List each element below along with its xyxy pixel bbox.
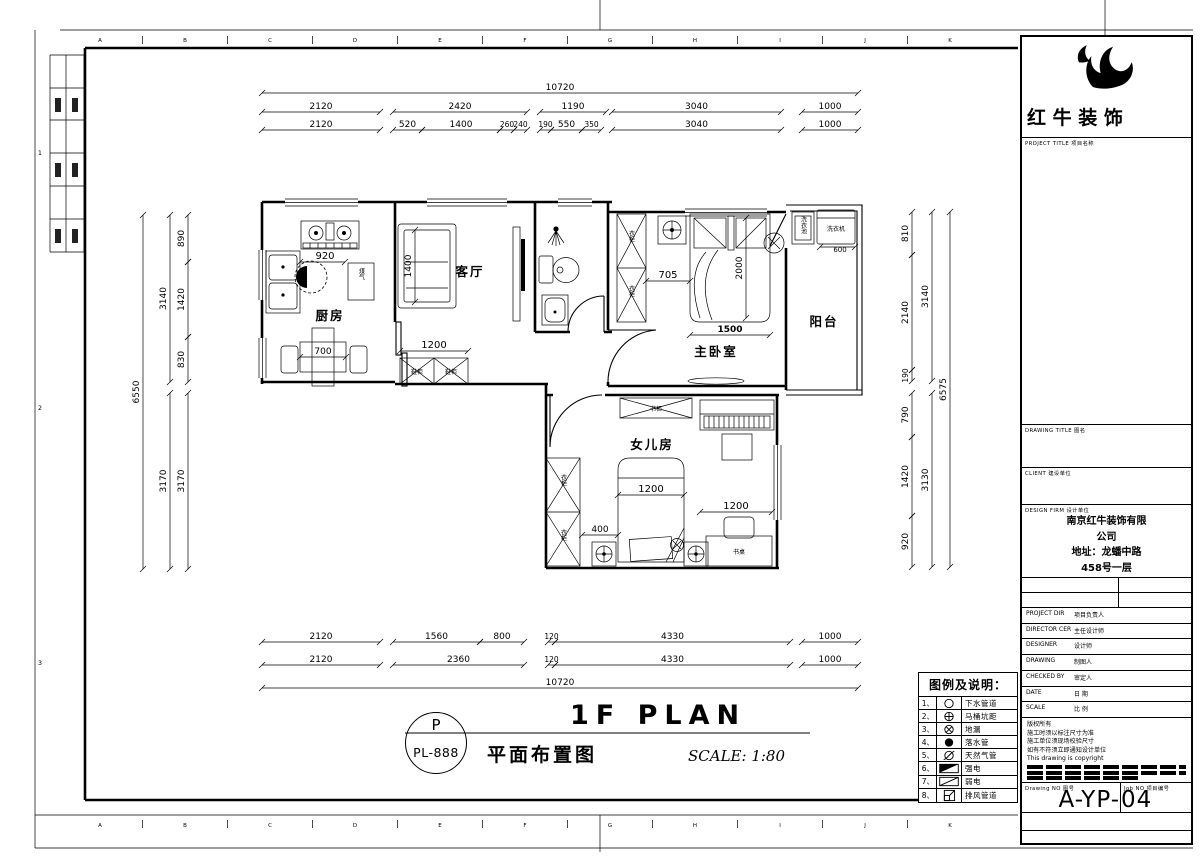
balcony-label: 阳台 [809, 314, 838, 329]
living-label: 客厅 [454, 264, 484, 279]
desk [706, 517, 772, 566]
dim-label: 1200 [421, 340, 446, 351]
grid-letter: G [608, 823, 612, 829]
dim-label: 3170 [177, 469, 187, 492]
legend-item: 3、 地漏 [919, 723, 1017, 736]
dim-label: 2120 [310, 102, 333, 112]
design-firm-section: DESIGN FIRM 设计单位 南京红牛装饰有限 公司 地址：龙蟠中路 458… [1022, 504, 1191, 577]
legend-title: 图例及说明： [919, 673, 1017, 697]
sheet-title: 1F PLAN [570, 700, 746, 731]
project-title-label: PROJECT TITLE 项目名称 [1025, 139, 1094, 147]
bookcase-label: 书柜 [650, 405, 662, 413]
scale-label: SCALE: 1:80 [688, 747, 785, 765]
balcony-glazing [770, 205, 862, 395]
legend-item: 5、 天然气管 [919, 749, 1017, 762]
blank-grid-section [1022, 577, 1191, 607]
legend-box: 图例及说明： 1、 下水管道 2、 马桶坑距 3、 地漏 4、 落水管 5、 天… [918, 672, 1018, 803]
dim-label: 1000 [819, 632, 842, 642]
dim-label: 520 [399, 120, 416, 130]
dim-label: 2140 [901, 301, 911, 324]
dim-label: 1000 [819, 655, 842, 665]
row-director: DIRECTOR CER主任设计师 [1022, 624, 1191, 640]
drawing-title-section: DRAWING TITLE 图名 [1022, 424, 1191, 467]
shoe-cab-label: 鞋柜 [445, 368, 457, 376]
dim-label: 600 [833, 246, 846, 254]
dim-label: 190 [538, 120, 553, 129]
firm-line: 公司 [1022, 530, 1191, 546]
grid-letter: H [693, 38, 697, 44]
dim-label: 705 [658, 270, 677, 281]
dim-label: 1420 [177, 288, 187, 311]
wardrobe-label: 衣柜 [628, 229, 635, 243]
drawing-no-section: Drawing NO 图号 A-YP- Job NO 项目编号 04 [1022, 782, 1191, 812]
revision-boxes [50, 55, 84, 252]
dim-label: 830 [177, 351, 187, 368]
dim-label: 810 [901, 225, 911, 242]
grid-letter: C [268, 38, 272, 44]
double-bed [690, 214, 770, 322]
dim-label: 4330 [661, 632, 684, 642]
dim-label: 3170 [159, 469, 169, 492]
dim-label: 3130 [921, 468, 931, 491]
dim-label: 10720 [546, 83, 575, 93]
signature-rows: PROJECT DIR项目负责人 DIRECTOR CER主任设计师 DESIG… [1022, 607, 1191, 717]
speaker-box-icon [658, 216, 686, 244]
legend-item: 1、 下水管道 [919, 697, 1017, 710]
row-checked: CHECKED BY审定人 [1022, 671, 1191, 687]
grid-letter: B [183, 823, 187, 829]
firm-line: 南京红牛装饰有限 [1022, 514, 1191, 530]
drawing-title-label: DRAWING TITLE 图名 [1025, 426, 1085, 434]
row-date: DATE日 期 [1022, 687, 1191, 703]
detail-bubble-number: PL-888 [406, 745, 466, 760]
dim-label: 790 [901, 406, 911, 423]
row-number: 2 [38, 404, 42, 412]
stove [301, 221, 359, 249]
logo-section: 红 牛 装 饰 [1022, 37, 1191, 137]
floor-plan-sheet: { "meta": { "sheet_title": "1F PLAN", "s… [0, 0, 1200, 852]
dim-label: 3140 [921, 285, 931, 308]
drawing-no-cell: Drawing NO 图号 A-YP- [1022, 783, 1120, 812]
single-bed [618, 458, 684, 562]
grid-letter: K [948, 823, 952, 829]
row-project-dir: PROJECT DIR项目负责人 [1022, 608, 1191, 624]
sheet-subtitle: 平面布置图 [487, 740, 597, 767]
row-number: 3 [38, 659, 42, 667]
grid-letter: J [863, 823, 866, 829]
living-room [397, 224, 525, 384]
brand-name: 红 牛 装 饰 [1027, 103, 1186, 130]
legend-item: 2、 马桶坑距 [919, 710, 1017, 723]
dim-label: 2420 [449, 102, 472, 112]
laundry-sink-label: 洗衣池 [800, 215, 807, 234]
dim-label: 1500 [717, 325, 742, 335]
copyright-line: 施工单位须现场校验尺寸 [1027, 738, 1186, 747]
grid-letter: I [779, 38, 781, 44]
dim-label: 120 [544, 632, 559, 641]
detail-bubble-letter: P [406, 716, 466, 734]
blank-row [1022, 593, 1191, 608]
piano-stool [722, 434, 752, 460]
struck-text-bar [1027, 771, 1186, 775]
kitchen [266, 221, 374, 386]
design-firm-text: 南京红牛装饰有限 公司 地址：龙蟠中路 458号一层 [1022, 514, 1191, 576]
row-scale: SCALE比 例 [1022, 702, 1191, 717]
legend-item: 7、 弱电 [919, 776, 1017, 789]
dim-label: 2120 [310, 632, 333, 642]
struck-text-bar [1027, 765, 1186, 769]
wardrobe-label: 衣柜 [628, 284, 635, 298]
weak-electric-icon [936, 776, 962, 788]
dim-label: 1400 [404, 254, 414, 277]
dim-label: 2360 [447, 655, 470, 665]
title-block: 红 牛 装 饰 PROJECT TITLE 项目名称 DRAWING TITLE… [1020, 35, 1193, 845]
gas-label: 煤气 [358, 267, 365, 280]
dim-label: 10720 [546, 678, 575, 688]
dim-label: 920 [901, 533, 911, 550]
dim-label: 1400 [450, 120, 473, 130]
grid-letter: A [98, 823, 102, 829]
dim-label: 920 [315, 251, 334, 262]
copyright-line: This drawing is copyright [1027, 755, 1186, 764]
gas-pipe-icon [936, 749, 962, 761]
exhaust-duct-icon [936, 789, 962, 802]
design-firm-label: DESIGN FIRM 设计单位 [1025, 506, 1089, 514]
dim-label: 1190 [562, 102, 585, 112]
dim-label: 190 [901, 368, 910, 383]
grid-letter: D [353, 38, 357, 44]
drain-pipe-icon [936, 697, 962, 709]
dim-label: 260 [500, 120, 515, 129]
piano [700, 400, 774, 430]
grid-letter: I [779, 823, 781, 829]
daughters-room [546, 398, 775, 566]
project-title-section: PROJECT TITLE 项目名称 [1022, 137, 1191, 424]
kitchen-label: 厨房 [315, 308, 344, 323]
grid-letter: H [693, 823, 697, 829]
dim-label: 1200 [723, 501, 748, 512]
client-section: CLIENT 建设单位 [1022, 467, 1191, 504]
row-designer: DESIGNER设计师 [1022, 639, 1191, 655]
grid-letter: C [268, 823, 272, 829]
floor-mat [688, 378, 744, 384]
kitchen-sink [266, 251, 300, 313]
shoe-cab-label: 鞋柜 [411, 368, 423, 376]
grid-letters: AABBCCDDEEFFGGHHIIJJKK123 [38, 36, 952, 829]
dim-label: 890 [177, 230, 187, 247]
struck-text-bar [1027, 776, 1138, 780]
dim-label: 350 [584, 120, 599, 129]
downpipe-icon [936, 736, 962, 748]
dim-label: 400 [591, 525, 608, 535]
tv-wall [513, 227, 525, 321]
firm-line: 458号一层 [1022, 561, 1191, 577]
wardrobe-label: 衣柜 [560, 473, 567, 487]
dim-label: 700 [314, 347, 331, 357]
dim-label: 1000 [819, 120, 842, 130]
dim-label: 6550 [132, 380, 142, 403]
dim-label: 6575 [939, 378, 949, 401]
bathroom-sink [542, 295, 568, 325]
detail-bubble: P PL-888 [405, 712, 467, 774]
firm-line: 地址：龙蟠中路 [1022, 545, 1191, 561]
client-label: CLIENT 建设单位 [1025, 469, 1071, 477]
strong-electric-icon [936, 762, 962, 774]
dim-label: 2000 [735, 256, 745, 279]
dim-label: 1000 [819, 102, 842, 112]
legend-item: 8、 排风管道 [919, 789, 1017, 802]
dim-label: 120 [544, 655, 559, 664]
bottom-empty-rows [1022, 812, 1191, 847]
toilet [539, 256, 579, 283]
daughter-label: 女儿房 [630, 437, 674, 452]
dimension-chains: 1072021202420119030401000212052014002602… [132, 83, 953, 691]
grid-letter: D [353, 823, 357, 829]
dim-label: 3140 [159, 287, 169, 310]
dim-label: 1420 [901, 465, 911, 488]
bathroom [539, 226, 579, 325]
washer-label: 洗衣机 [827, 225, 845, 233]
dim-label: 550 [558, 120, 575, 130]
dim-label: 1200 [638, 484, 663, 495]
toilet-pit-icon [936, 710, 962, 722]
dim-label: 2120 [310, 120, 333, 130]
grid-letter: F [523, 823, 526, 829]
job-no-cell: Job NO 项目编号 04 [1120, 783, 1191, 812]
dim-label: 240 [513, 120, 528, 129]
master-label: 主卧室 [694, 344, 738, 359]
dim-label: 2120 [310, 655, 333, 665]
grid-letter: B [183, 38, 187, 44]
copyright-line: 施工时须以标注尺寸为准 [1027, 730, 1186, 739]
shoe-cabinet [397, 348, 471, 384]
dim-label: 1560 [425, 632, 448, 642]
legend-item: 4、 落水管 [919, 736, 1017, 749]
shower-head-icon [548, 226, 564, 246]
grid-letter: E [438, 38, 442, 44]
grid-letter: E [438, 823, 442, 829]
grid-letter: F [523, 38, 526, 44]
wardrobe-label: 衣柜 [560, 528, 567, 542]
row-number: 1 [38, 149, 42, 157]
grid-letter: J [863, 38, 866, 44]
copyright-line: 版权所有 [1027, 721, 1186, 730]
dim-label: 4330 [661, 655, 684, 665]
grid-letter: A [98, 38, 102, 44]
dim-label: 3040 [685, 120, 708, 130]
legend-item: 6、 强电 [919, 762, 1017, 775]
blank-row [1022, 578, 1191, 593]
copyright-section: 版权所有 施工时须以标注尺寸为准 施工单位须现场校验尺寸 如有不符须立即通知设计… [1022, 717, 1191, 782]
dim-label: 3040 [685, 102, 708, 112]
drawing-no-value: A-YP- [1059, 789, 1121, 812]
grid-letter: K [948, 38, 952, 44]
dim-label: 800 [493, 632, 510, 642]
grid-letter: G [608, 38, 612, 44]
desk-label: 书桌 [733, 548, 745, 556]
floor-drain-icon [936, 723, 962, 735]
row-drawing: DRAWING制图人 [1022, 655, 1191, 671]
wall-fan-icon [764, 233, 784, 253]
job-no-value: 04 [1121, 789, 1152, 812]
copyright-line: 如有不符须立即通知设计单位 [1027, 747, 1186, 756]
bull-logo-icon [1070, 39, 1150, 101]
